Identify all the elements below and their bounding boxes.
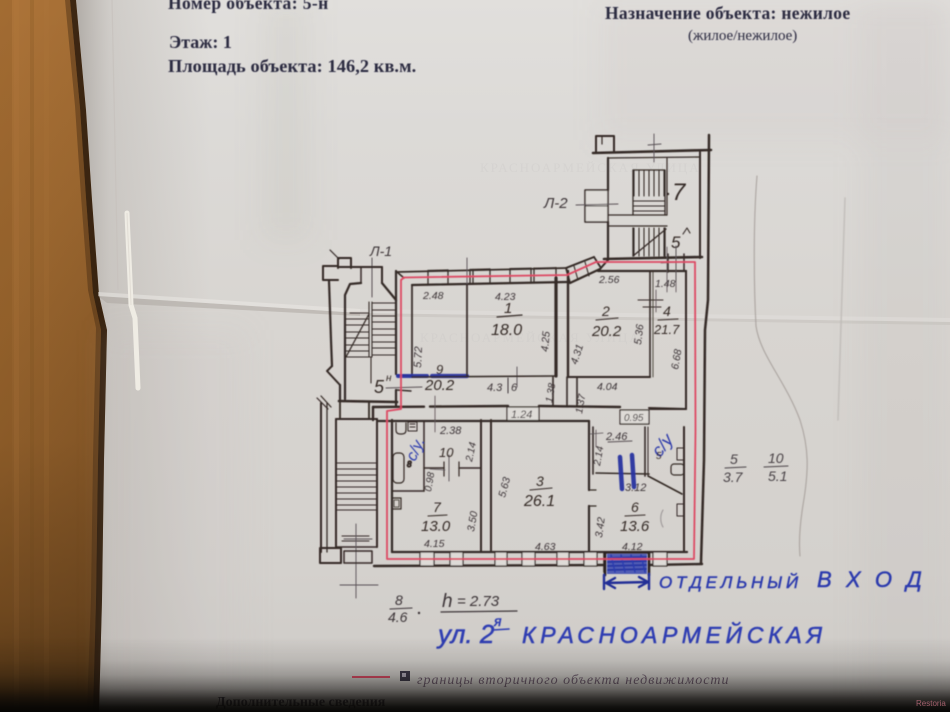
svg-text:Л-2: Л-2 (543, 195, 568, 212)
svg-text:Этаж: 1: Этаж: 1 (169, 32, 232, 52)
svg-text:h: h (442, 591, 453, 612)
svg-text:5: 5 (730, 451, 738, 467)
svg-text:2.48: 2.48 (422, 290, 444, 302)
svg-text:5.36: 5.36 (632, 323, 646, 345)
svg-text:1.24: 1.24 (511, 409, 532, 421)
svg-text:13.6: 13.6 (620, 518, 650, 535)
svg-text:ОТДЕЛЬНЫЙ: ОТДЕЛЬНЫЙ (659, 572, 802, 592)
svg-text:5: 5 (374, 377, 385, 397)
svg-text:5.1: 5.1 (768, 468, 787, 484)
svg-text:= 2.73: = 2.73 (457, 593, 500, 610)
svg-text:(жилое/нежилое): (жилое/нежилое) (688, 28, 797, 44)
svg-text:н: н (386, 373, 392, 384)
svg-text:2: 2 (601, 303, 610, 319)
svg-text:10: 10 (439, 445, 454, 460)
svg-text:1.48: 1.48 (655, 278, 676, 290)
svg-text:3.7: 3.7 (723, 469, 744, 485)
svg-text:4.04: 4.04 (597, 381, 618, 393)
svg-text:2.38: 2.38 (439, 425, 462, 437)
svg-text:26.1: 26.1 (523, 493, 555, 510)
svg-text:5: 5 (656, 451, 662, 462)
svg-text:8: 8 (407, 460, 412, 469)
svg-text:4.25: 4.25 (539, 331, 553, 353)
svg-text:4.3: 4.3 (487, 382, 503, 394)
svg-text:2.56: 2.56 (598, 274, 620, 286)
svg-text:Restoria: Restoria (916, 699, 946, 708)
svg-text:Номер объекта: 5-н: Номер объекта: 5-н (168, 0, 329, 13)
svg-text:5.72: 5.72 (412, 346, 425, 368)
svg-text:ВХОД: ВХОД (817, 567, 937, 592)
svg-text:6: 6 (631, 499, 639, 515)
svg-text:0.95: 0.95 (624, 413, 644, 424)
svg-text:8: 8 (395, 592, 403, 608)
svg-text:7: 7 (672, 179, 687, 206)
svg-text:я: я (493, 613, 502, 629)
svg-text:20.2: 20.2 (424, 377, 455, 394)
svg-text:Назначение объекта: нежилое: Назначение объекта: нежилое (605, 3, 850, 23)
svg-text:3: 3 (536, 473, 544, 489)
svg-text:13.0: 13.0 (421, 518, 451, 535)
svg-text:10: 10 (768, 450, 784, 466)
svg-text:4.6: 4.6 (388, 609, 408, 625)
svg-text:Л-1: Л-1 (369, 243, 392, 259)
svg-text:1: 1 (504, 300, 512, 317)
svg-text:7: 7 (433, 499, 442, 515)
svg-text:4.15: 4.15 (424, 538, 445, 550)
svg-text:4: 4 (663, 303, 671, 319)
svg-text:20.2: 20.2 (591, 323, 622, 340)
svg-text:21.7: 21.7 (653, 322, 680, 337)
svg-text:Площадь объекта: 146,2 кв.м.: Площадь объекта: 146,2 кв.м. (168, 56, 416, 76)
svg-text:18.0: 18.0 (491, 322, 522, 339)
